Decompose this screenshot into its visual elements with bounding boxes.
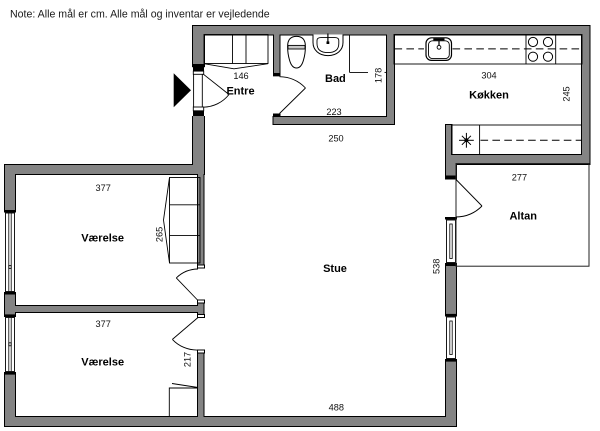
svg-text:538: 538 — [432, 259, 442, 274]
svg-text:146: 146 — [233, 71, 248, 81]
svg-text:Værelse: Værelse — [81, 232, 124, 244]
svg-text:245: 245 — [561, 86, 571, 101]
svg-text:265: 265 — [155, 227, 165, 242]
svg-text:277: 277 — [512, 173, 527, 183]
svg-text:377: 377 — [96, 319, 111, 329]
svg-text:Stue: Stue — [323, 263, 347, 275]
svg-text:Note: Alle mål er cm. Alle mål: Note: Alle mål er cm. Alle mål og invent… — [10, 9, 270, 21]
svg-text:304: 304 — [481, 71, 496, 81]
svg-text:Altan: Altan — [509, 210, 537, 222]
svg-text:217: 217 — [182, 352, 192, 367]
svg-text:Værelse: Værelse — [81, 357, 124, 369]
svg-text:223: 223 — [326, 107, 341, 117]
svg-text:178: 178 — [374, 68, 384, 83]
svg-text:Bad: Bad — [325, 73, 346, 85]
svg-text:488: 488 — [329, 403, 344, 413]
svg-text:377: 377 — [96, 183, 111, 193]
svg-text:Køkken: Køkken — [469, 89, 509, 101]
svg-text:Entre: Entre — [226, 86, 254, 98]
svg-text:250: 250 — [328, 134, 343, 144]
